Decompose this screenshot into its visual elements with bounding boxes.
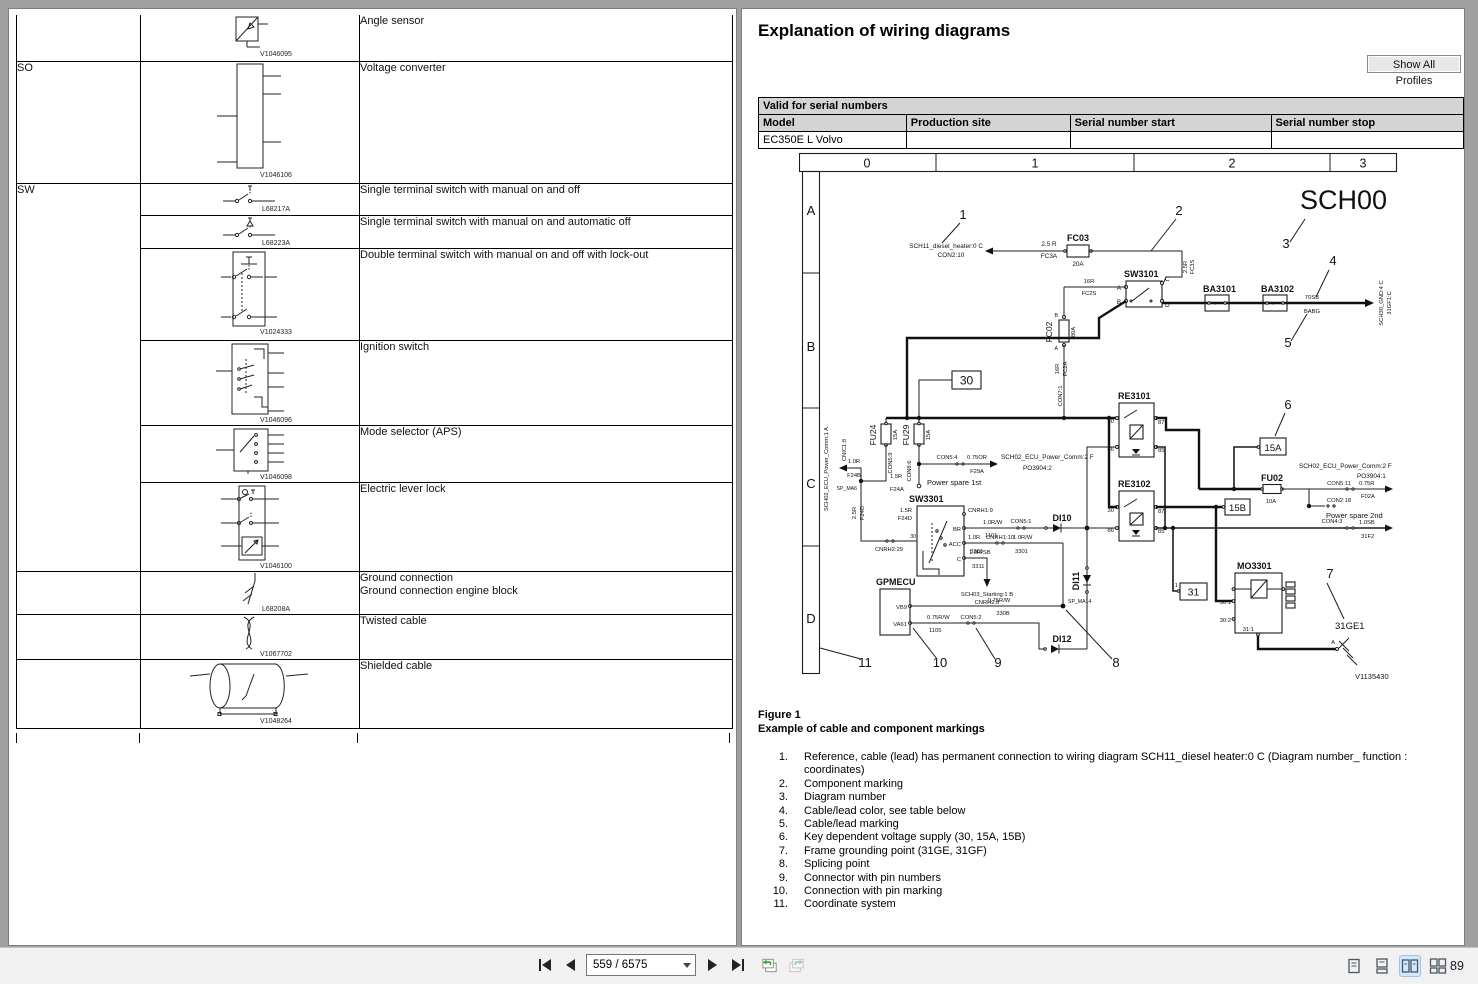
pin-label: 30 bbox=[910, 534, 916, 540]
pin-label: 30:1 bbox=[1220, 600, 1231, 606]
component-label: RE3102 bbox=[1118, 479, 1151, 489]
component-label: DI11 bbox=[1071, 572, 1081, 591]
wire-label: 1105 bbox=[929, 628, 941, 634]
component-label: BA3102 bbox=[1261, 284, 1294, 294]
symbol-ref: V1046095 bbox=[260, 51, 292, 59]
wire-reference: SCH02_ECU_Power_Comm:2 F bbox=[1001, 454, 1094, 461]
fuse-rating: 15A bbox=[926, 430, 932, 440]
legend-text: Diagram number bbox=[804, 791, 1452, 804]
zoom-level: 89 bbox=[1450, 959, 1464, 973]
connector-label: CON5:9 bbox=[888, 453, 894, 474]
connector-label: CON5:1 bbox=[1011, 519, 1032, 525]
legend-number: 4. bbox=[758, 805, 788, 818]
wire-label: FC2S bbox=[1082, 291, 1097, 297]
wire-label: 2.5R bbox=[1183, 261, 1189, 273]
callout-number: 2 bbox=[1175, 203, 1182, 218]
symbol-cell: V1046096 bbox=[141, 341, 360, 426]
symbol-desc: Twisted cable bbox=[360, 615, 733, 660]
show-all-profiles-button[interactable]: Show All Profiles bbox=[1367, 55, 1461, 73]
table-row: EC350E L Volvo bbox=[759, 132, 1464, 149]
component-label: FU02 bbox=[1261, 473, 1283, 483]
symbol-cell: V1024333 bbox=[141, 249, 360, 341]
wire-label: 1.0R/W bbox=[1013, 535, 1033, 541]
pin-label: 30 bbox=[1108, 508, 1114, 514]
table-row: V1048264 Shielded cable bbox=[17, 660, 733, 729]
grid-col-label: 0 bbox=[864, 157, 871, 171]
table-grid-stub bbox=[729, 733, 730, 743]
table-row: SO V1046106 Voltage converter bbox=[17, 62, 733, 184]
symbol-cell: V1046098 bbox=[141, 426, 360, 483]
wire-reference: 31GF1:C bbox=[1387, 291, 1393, 315]
single-page-icon bbox=[1346, 958, 1362, 974]
legend-item: 1.Reference, cable (lead) has permanent … bbox=[758, 751, 1458, 778]
symbol-desc: Angle sensor bbox=[360, 15, 733, 62]
grid-row-label: C bbox=[806, 476, 815, 491]
pin-label: A bbox=[1117, 285, 1122, 292]
callout-number: 6 bbox=[1284, 397, 1291, 412]
legend-text: Coordinate system bbox=[804, 898, 1452, 911]
wire-label: 1.0R/W bbox=[983, 520, 1003, 526]
mode-selector-symbol bbox=[208, 426, 292, 474]
legend-text: Frame grounding point (31GE, 31GF) bbox=[804, 845, 1452, 858]
col-serial-stop: Serial number stop bbox=[1271, 115, 1463, 132]
symbol-desc: Electric lever lock bbox=[360, 483, 733, 572]
two-page-layout-button[interactable] bbox=[1400, 956, 1420, 976]
figure-legend: 1.Reference, cable (lead) has permanent … bbox=[758, 751, 1458, 912]
legend-text: Splicing point bbox=[804, 858, 1452, 871]
symbol-ref: V1046096 bbox=[260, 417, 292, 425]
symbol-cell: L68208A bbox=[141, 572, 360, 615]
battery-polarity: + - bbox=[1271, 301, 1279, 308]
single-switch-auto-off-symbol bbox=[215, 216, 285, 240]
wire-label: F24D bbox=[898, 516, 912, 522]
page-title: Explanation of wiring diagrams bbox=[758, 21, 1010, 41]
wire-label: F24B bbox=[847, 473, 861, 479]
table-grid-stub bbox=[357, 733, 358, 743]
page-number-input[interactable] bbox=[587, 958, 681, 972]
wire-label: 1.0R bbox=[968, 535, 980, 541]
component-label: GPMECU bbox=[876, 577, 916, 587]
legend-text: Key dependent voltage supply (30, 15A, 1… bbox=[804, 831, 1452, 844]
component-label: BA3101 bbox=[1203, 284, 1236, 294]
supply-label: 31 bbox=[1188, 587, 1200, 599]
view-history-buttons bbox=[761, 955, 805, 975]
col-model: Model bbox=[759, 115, 907, 132]
ignition-switch-symbol bbox=[208, 341, 292, 417]
connector-label: CON4:3 bbox=[1322, 519, 1343, 525]
fuse-rating: 80A bbox=[1071, 327, 1077, 337]
callout-number: 10 bbox=[933, 655, 947, 670]
wire-reference: SCH11_diesel_heater:0 C bbox=[909, 243, 983, 250]
legend-number: 10. bbox=[758, 885, 788, 898]
legend-number: 5. bbox=[758, 818, 788, 831]
splice-label: SP_MA6 bbox=[837, 486, 858, 492]
symbol-desc: Shielded cable bbox=[360, 660, 733, 729]
grounding-point-label: 31GE1 bbox=[1335, 621, 1365, 632]
callout-number: 4 bbox=[1329, 253, 1336, 268]
wire-label: 2.5 R bbox=[1041, 241, 1057, 248]
wire-label: 1.0R/SB bbox=[969, 550, 991, 556]
connector-label: CON5:2 bbox=[961, 615, 982, 621]
symbol-cell: L68217A bbox=[141, 184, 360, 216]
viewer-toolbar: 89 bbox=[0, 947, 1478, 984]
next-page-icon bbox=[707, 958, 718, 972]
fuse-rating: 10A bbox=[1266, 499, 1276, 505]
table-row: SW L68217A Single terminal switch with m… bbox=[17, 184, 733, 216]
single-page-layout-button[interactable] bbox=[1344, 956, 1364, 976]
symbol-ref: L68223A bbox=[262, 240, 290, 248]
symbol-table: V1046095 Angle sensor SO V1046106 Voltag… bbox=[16, 15, 733, 729]
pin-label: 85 bbox=[1158, 529, 1164, 535]
legend-item: 4.Cable/lead color, see table below bbox=[758, 805, 1458, 818]
legend-item: 3.Diagram number bbox=[758, 791, 1458, 804]
pin-label: 87 bbox=[1158, 509, 1164, 515]
symbol-cell: L68223A bbox=[141, 216, 360, 249]
component-label: FC02 bbox=[1044, 321, 1054, 342]
pdf-viewer-window: V1046095 Angle sensor SO V1046106 Voltag… bbox=[0, 0, 1478, 984]
code-cell bbox=[17, 615, 141, 660]
legend-number: 7. bbox=[758, 845, 788, 858]
wire-label: 3311 bbox=[972, 564, 984, 570]
connector-label: CNRH1:9 bbox=[968, 508, 993, 514]
legend-number: 6. bbox=[758, 831, 788, 844]
serial-table-caption: Valid for serial numbers bbox=[759, 98, 1464, 115]
table-row: V1067702 Twisted cable bbox=[17, 615, 733, 660]
wire-reference: PO3904:2 bbox=[1023, 465, 1052, 472]
pin-label: A bbox=[1055, 346, 1059, 352]
wire-label: 0.75R/W bbox=[927, 615, 950, 621]
wiring-diagram-figure: 0 1 2 3 A B C D SCH00 SCH11_diesel_heate… bbox=[799, 151, 1399, 686]
code-cell bbox=[17, 660, 141, 729]
desc-line1: Ground connection bbox=[360, 572, 453, 584]
component-label: MO3301 bbox=[1237, 561, 1272, 571]
wire-label: 0.75OR bbox=[967, 455, 987, 461]
grid-col-label: 3 bbox=[1360, 157, 1367, 171]
pin-label: 31:1 bbox=[1243, 627, 1254, 633]
legend-item: 6.Key dependent voltage supply (30, 15A,… bbox=[758, 831, 1458, 844]
first-page-icon bbox=[538, 958, 553, 972]
table-header-row: Model Production site Serial number star… bbox=[759, 115, 1464, 132]
wire-label: 3301 bbox=[1015, 549, 1028, 555]
table-grid-stub bbox=[139, 733, 140, 743]
voltage-converter-symbol bbox=[205, 62, 295, 172]
legend-text: Component marking bbox=[804, 778, 1452, 791]
pin-label: BR bbox=[953, 527, 961, 533]
symbol-cell: V1046100 bbox=[141, 483, 360, 572]
page-right: Explanation of wiring diagrams Show All … bbox=[741, 8, 1465, 946]
legend-number: 1. bbox=[758, 751, 788, 778]
symbol-cell: V1067702 bbox=[141, 615, 360, 660]
legend-number: 8. bbox=[758, 858, 788, 871]
callout-number: 7 bbox=[1326, 566, 1333, 581]
two-page-icon bbox=[1401, 958, 1419, 974]
legend-item: 10.Connection with pin marking bbox=[758, 885, 1458, 898]
wire-label: 2.5R bbox=[852, 507, 858, 519]
pin-label: 30:2 bbox=[1220, 618, 1231, 624]
legend-text: Connector with pin numbers bbox=[804, 872, 1452, 885]
wire-label: FC2A bbox=[1063, 361, 1069, 376]
combobox-caret-icon[interactable] bbox=[683, 963, 691, 968]
next-page-button[interactable] bbox=[703, 955, 721, 975]
previous-view-button[interactable] bbox=[761, 955, 779, 975]
col-serial-start: Serial number start bbox=[1070, 115, 1271, 132]
grid-col-label: 2 bbox=[1229, 157, 1236, 171]
wire-label: 0.75R bbox=[1359, 481, 1374, 487]
wire-label: 31F2 bbox=[1361, 534, 1374, 540]
previous-page-button[interactable] bbox=[561, 955, 579, 975]
code-cell: SO bbox=[17, 62, 141, 184]
wire-label: FC3A bbox=[1041, 253, 1058, 260]
double-switch-lockout-symbol bbox=[215, 249, 285, 329]
pin-label: ACC bbox=[949, 542, 961, 548]
symbol-desc: Ignition switch bbox=[360, 341, 733, 426]
splice-label: SP_MA14 bbox=[1068, 599, 1091, 605]
battery-polarity: + - bbox=[1213, 301, 1221, 308]
symbol-ref: V1046100 bbox=[260, 563, 292, 571]
symbol-desc: Double terminal switch with manual on an… bbox=[360, 249, 733, 341]
wire-label: 16R bbox=[1055, 364, 1061, 375]
legend-text: Connection with pin marking bbox=[804, 885, 1452, 898]
page-left: V1046095 Angle sensor SO V1046106 Voltag… bbox=[8, 8, 737, 946]
legend-number: 3. bbox=[758, 791, 788, 804]
wire-reference: SCH30_GND:4 C bbox=[1379, 280, 1385, 325]
component-label: SW3101 bbox=[1124, 269, 1159, 279]
callout-number: 5 bbox=[1284, 335, 1291, 350]
callout-number: 1 bbox=[959, 207, 966, 222]
grid-row-label: A bbox=[807, 203, 816, 218]
first-page-button[interactable] bbox=[536, 955, 554, 975]
cell-serial-start bbox=[1070, 132, 1271, 149]
symbol-desc: Mode selector (APS) bbox=[360, 426, 733, 483]
pin-label: 85 bbox=[1158, 448, 1164, 454]
supply-label: 30 bbox=[960, 374, 974, 388]
table-row: L68208A Ground connection Ground connect… bbox=[17, 572, 733, 615]
component-label: FU29 bbox=[901, 424, 911, 445]
cell-production-site bbox=[906, 132, 1070, 149]
legend-item: 7.Frame grounding point (31GE, 31GF) bbox=[758, 845, 1458, 858]
legend-item: 5.Cable/lead marking bbox=[758, 818, 1458, 831]
legend-item: 9.Connector with pin numbers bbox=[758, 872, 1458, 885]
wire-reference: CON2:10 bbox=[938, 252, 965, 259]
component-label: FU24 bbox=[868, 424, 878, 445]
two-page-scroll-icon bbox=[1429, 958, 1447, 974]
pin-label: 1 bbox=[1175, 583, 1178, 589]
connector-label: CNRH1:10 bbox=[986, 535, 1014, 541]
symbol-cell: V1046106 bbox=[141, 62, 360, 184]
symbol-cell: V1046095 bbox=[141, 15, 360, 62]
legend-text: Cable/lead color, see table below bbox=[804, 805, 1452, 818]
supply-label: 15B bbox=[1229, 503, 1246, 514]
next-view-icon bbox=[787, 957, 805, 974]
pin-label: VA61 bbox=[893, 622, 907, 628]
legend-number: 9. bbox=[758, 872, 788, 885]
wire-reference: SCH02_ECU_Power_Comm:1 A bbox=[824, 427, 830, 511]
wire-label: 1.0R bbox=[848, 459, 860, 465]
wire-label: 1.0SB bbox=[1359, 520, 1375, 526]
wire-label: FC3S bbox=[1190, 259, 1196, 274]
code-cell bbox=[17, 15, 141, 62]
fuse-rating: 15A bbox=[893, 430, 899, 440]
last-page-button[interactable] bbox=[728, 955, 746, 975]
symbol-cell: V1048264 bbox=[141, 660, 360, 729]
wire-label: 1.5R bbox=[900, 508, 912, 514]
serial-numbers-table: Valid for serial numbers Model Productio… bbox=[758, 97, 1464, 149]
wire-label: 0.75R/W bbox=[988, 598, 1011, 604]
electric-lever-lock-symbol bbox=[215, 483, 285, 563]
pin-label: B bbox=[1055, 313, 1059, 319]
legend-item: 8.Splicing point bbox=[758, 858, 1458, 871]
table-row: V1046095 Angle sensor bbox=[17, 15, 733, 62]
legend-text: Cable/lead marking bbox=[804, 818, 1452, 831]
connector-label: CON5:11 bbox=[1327, 481, 1351, 487]
code-cell: SW bbox=[17, 184, 141, 572]
figure-label: Figure 1 bbox=[758, 709, 801, 721]
wire-reference: CNIC1:8 bbox=[842, 439, 848, 461]
table-caption-row: Valid for serial numbers bbox=[759, 98, 1464, 115]
wire-label: 16R bbox=[1084, 279, 1095, 285]
last-page-icon bbox=[730, 958, 745, 972]
wire-reference: SCH02_ECU_Power_Comm:2 F bbox=[1299, 463, 1392, 470]
twisted-cable-symbol bbox=[230, 615, 270, 651]
code-cell bbox=[17, 572, 141, 615]
wire-reference: PO3904:1 bbox=[1357, 473, 1386, 480]
component-label: SW3301 bbox=[909, 494, 944, 504]
wire-label: F24A bbox=[890, 487, 904, 493]
legend-text: Reference, cable (lead) has permanent co… bbox=[804, 751, 1452, 778]
next-view-button[interactable] bbox=[787, 955, 805, 975]
pin-label: VB9 bbox=[896, 605, 907, 611]
grid-row-label: D bbox=[806, 611, 815, 626]
continuous-layout-button[interactable] bbox=[1372, 956, 1392, 976]
connector-label: CON7:1 bbox=[1058, 386, 1064, 407]
page-navigation bbox=[536, 954, 805, 976]
legend-item: 11.Coordinate system bbox=[758, 898, 1458, 911]
page-number-combobox[interactable] bbox=[586, 954, 696, 976]
grid-col-label: 1 bbox=[1032, 157, 1039, 171]
symbol-ref: V1024333 bbox=[260, 329, 292, 337]
annotation: Power spare 1st bbox=[927, 478, 982, 487]
callout-number: 11 bbox=[858, 655, 872, 670]
legend-number: 11. bbox=[758, 898, 788, 911]
pin-label: 87 bbox=[1158, 420, 1164, 426]
angle-sensor-symbol bbox=[220, 15, 280, 51]
ground-connection-symbol bbox=[225, 572, 275, 606]
callout-number: 3 bbox=[1282, 236, 1289, 251]
component-label: DI12 bbox=[1052, 634, 1071, 644]
supply-label: 15A bbox=[1265, 443, 1283, 454]
single-switch-manual-symbol bbox=[215, 184, 285, 206]
pin-label: 86 bbox=[1108, 528, 1114, 534]
cell-serial-stop bbox=[1271, 132, 1463, 149]
two-page-continuous-layout-button[interactable] bbox=[1428, 956, 1448, 976]
legend-item: 2.Component marking bbox=[758, 778, 1458, 791]
connector-label: CON5:4 bbox=[937, 455, 959, 461]
symbol-ref: V1067702 bbox=[260, 651, 292, 659]
pin-label: C bbox=[1165, 276, 1170, 283]
cell-model: EC350E L Volvo bbox=[759, 132, 907, 149]
figure-ref: V1135430 bbox=[1355, 672, 1389, 681]
grid-row-label: B bbox=[807, 339, 816, 354]
desc-line2: Ground connection engine block bbox=[360, 585, 518, 597]
wire-label: F02A bbox=[1361, 494, 1375, 500]
figure-caption: Example of cable and component markings bbox=[758, 723, 985, 735]
symbol-desc: Single terminal switch with manual on an… bbox=[360, 184, 733, 216]
connector-label: CNRH2:29 bbox=[875, 547, 903, 553]
col-production-site: Production site bbox=[906, 115, 1070, 132]
wire-label: 330B bbox=[996, 611, 1010, 617]
symbol-ref: L68217A bbox=[262, 206, 290, 214]
page-layout-buttons bbox=[1344, 956, 1448, 976]
wire-label: 1.5R bbox=[890, 474, 902, 480]
component-label: RE3101 bbox=[1118, 391, 1151, 401]
diagram-number: SCH00 bbox=[1300, 185, 1387, 215]
wire-label: F29A bbox=[970, 469, 984, 475]
pin-label: C bbox=[957, 557, 961, 563]
callout-number: 9 bbox=[994, 655, 1001, 670]
component-label: FC03 bbox=[1067, 233, 1089, 243]
connector-label: CON2:18 bbox=[1327, 498, 1351, 504]
previous-page-icon bbox=[565, 958, 576, 972]
symbol-desc: Ground connection Ground connection engi… bbox=[360, 572, 733, 615]
connector-label: CON8:6 bbox=[907, 461, 913, 482]
pin-label: A bbox=[1331, 640, 1335, 646]
component-label: DI10 bbox=[1052, 513, 1071, 523]
shielded-cable-symbol bbox=[190, 660, 310, 718]
symbol-ref: V1046098 bbox=[260, 474, 292, 482]
symbol-desc: Voltage converter bbox=[360, 62, 733, 184]
legend-number: 2. bbox=[758, 778, 788, 791]
symbol-ref: V1046106 bbox=[260, 172, 292, 180]
symbol-desc: Single terminal switch with manual on an… bbox=[360, 216, 733, 249]
table-grid-stub bbox=[16, 733, 17, 743]
callout-number: 8 bbox=[1112, 655, 1119, 670]
previous-view-icon bbox=[761, 957, 779, 974]
continuous-page-icon bbox=[1374, 958, 1390, 974]
fuse-rating: 20A bbox=[1072, 261, 1084, 268]
symbol-ref: V1048264 bbox=[260, 718, 292, 726]
symbol-ref: L68208A bbox=[262, 606, 290, 614]
